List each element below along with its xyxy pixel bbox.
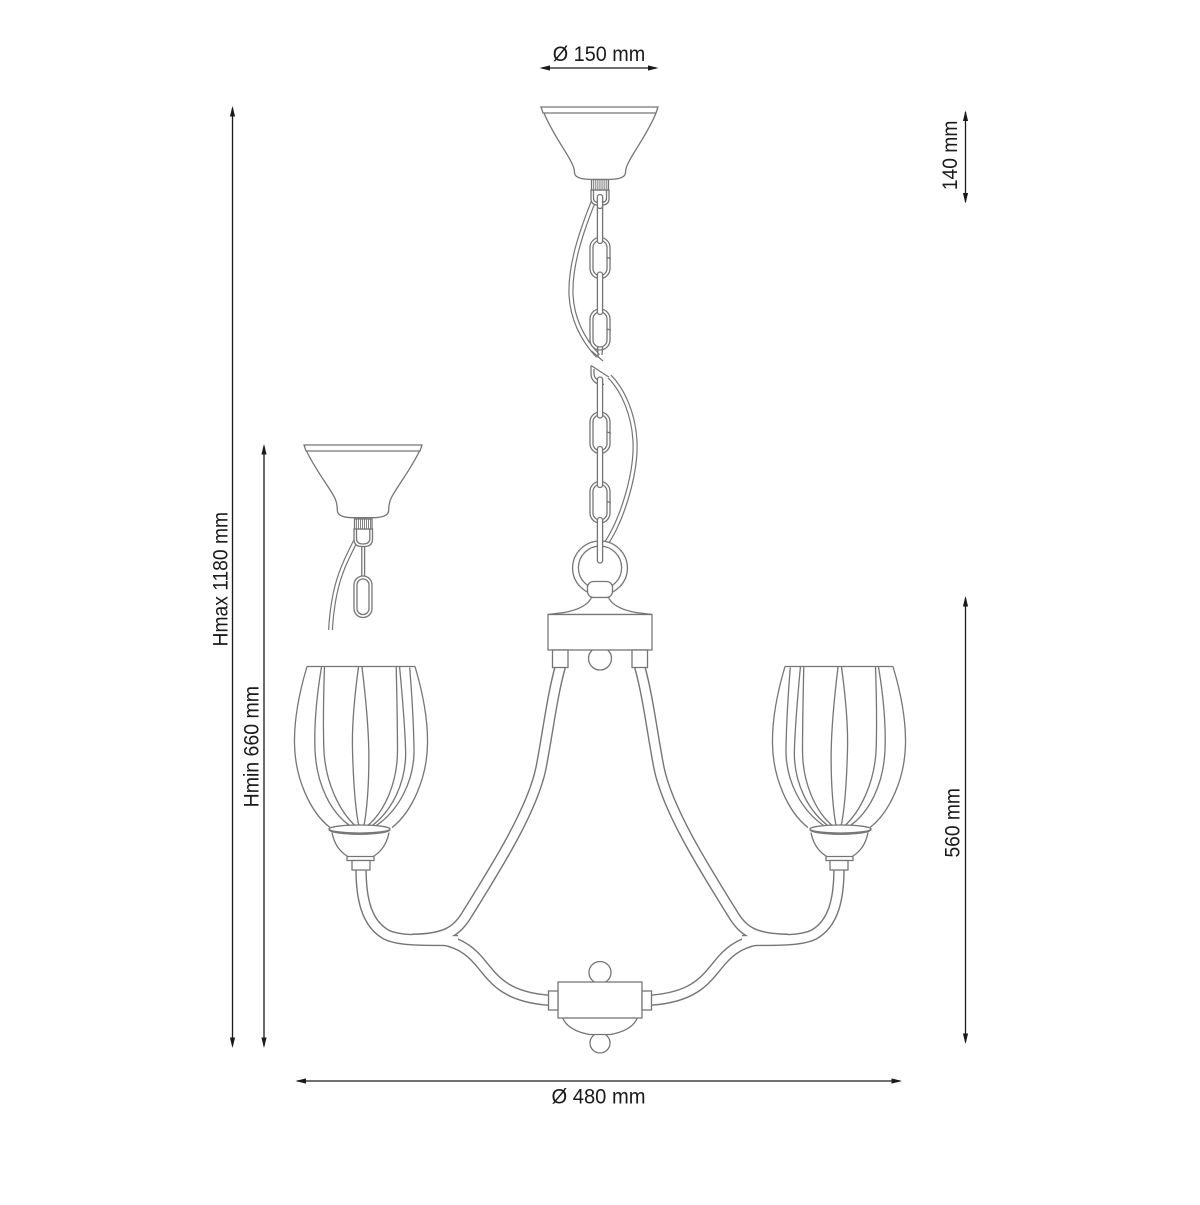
svg-text:Hmax 1180 mm: Hmax 1180 mm xyxy=(210,512,233,647)
svg-text:560 mm: 560 mm xyxy=(942,788,965,858)
svg-text:Ø 480 mm: Ø 480 mm xyxy=(552,1086,646,1109)
svg-text:Hmin 660 mm: Hmin 660 mm xyxy=(241,686,264,807)
svg-text:Ø 150 mm: Ø 150 mm xyxy=(553,43,646,66)
svg-text:140 mm: 140 mm xyxy=(939,121,962,191)
